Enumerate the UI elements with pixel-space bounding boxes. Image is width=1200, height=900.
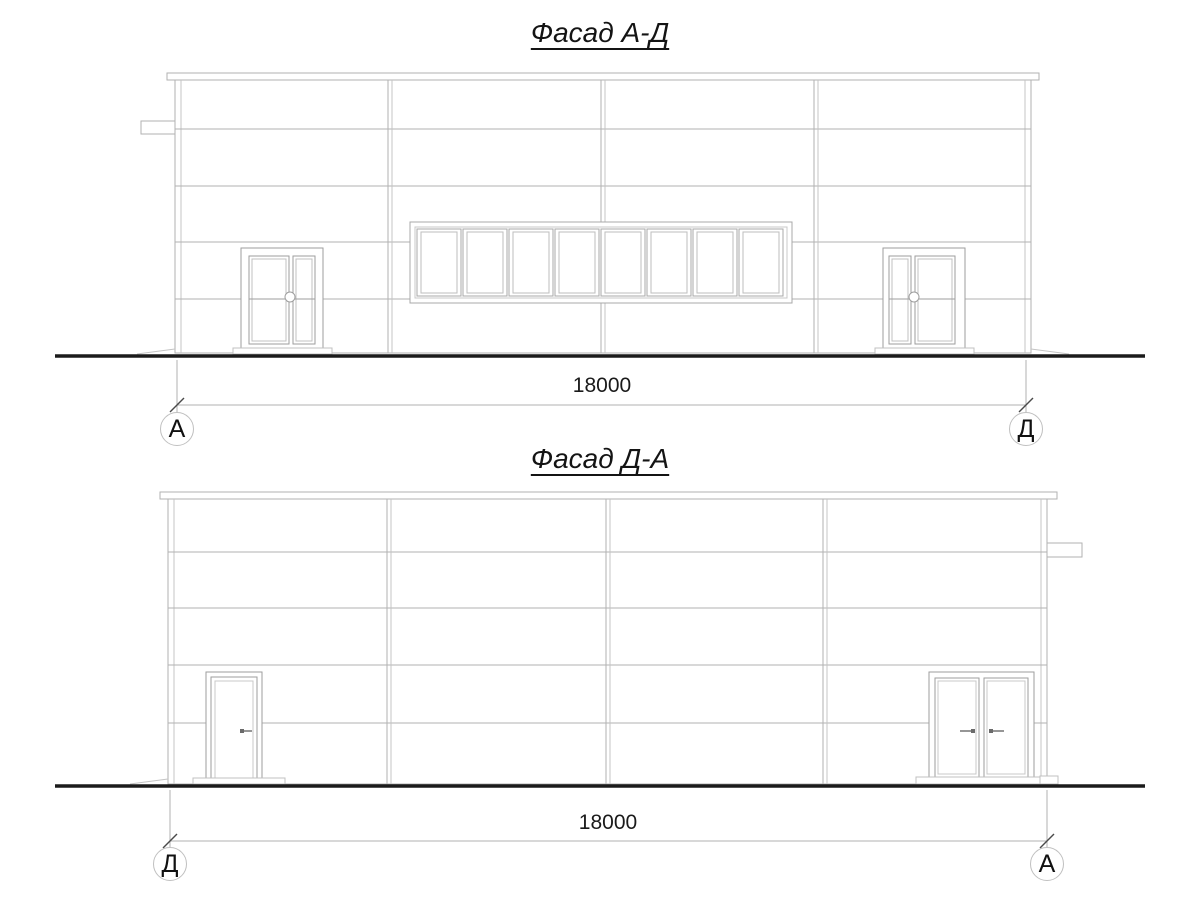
axis-marker-right: Д (1010, 413, 1043, 446)
facade-ad-door-right (875, 248, 974, 354)
door-handle-icon (285, 292, 295, 302)
axis-marker-left: А (161, 413, 194, 446)
scupper-right (1047, 543, 1082, 557)
facade-da-parapet (160, 492, 1057, 499)
elevation-drawing: 18000 А Д (0, 0, 1200, 900)
facade-ad-parapet (167, 73, 1039, 80)
apron-left (137, 349, 175, 354)
axis-letter: Д (162, 850, 179, 878)
window-pane (417, 229, 461, 296)
wall-outline (168, 499, 1047, 784)
door-handle-head (989, 729, 993, 733)
axis-marker-right: А (1031, 848, 1064, 881)
axis-letter: Д (1018, 415, 1035, 443)
door-handle-icon (909, 292, 919, 302)
scupper-left (141, 121, 175, 134)
dimension-value: 18000 (573, 374, 631, 397)
window-pane (509, 229, 553, 296)
door-leaf (249, 256, 289, 344)
window-pane (739, 229, 783, 296)
facade-ad-elevation: 18000 А Д (55, 73, 1145, 446)
axis-letter: А (1039, 850, 1056, 878)
window-pane (555, 229, 599, 296)
door-threshold (916, 777, 1046, 784)
door-leaf-right (984, 678, 1028, 777)
door-threshold (233, 348, 332, 354)
door-leaf-left (935, 678, 979, 777)
apron-left (130, 779, 168, 784)
axis-letter: А (169, 415, 186, 443)
facade-ad-window-band (410, 222, 792, 303)
door-threshold (193, 778, 285, 784)
corner-plinth (1040, 776, 1058, 784)
facade-da-elevation: 18000 Д А (55, 492, 1145, 881)
facade-da-dimension: 18000 Д А (154, 790, 1064, 881)
window-pane (693, 229, 737, 296)
facade-da-wall (168, 499, 1047, 784)
facade-ad-door-left (233, 248, 332, 354)
drawing-canvas: Фасад А-Д Фасад Д-А (0, 0, 1200, 900)
facade-ad-dimension: 18000 А Д (161, 360, 1043, 446)
door-handle-head (971, 729, 975, 733)
door-handle-head (240, 729, 244, 733)
door-leaf (211, 677, 257, 778)
door-threshold (875, 348, 974, 354)
door-leaf (915, 256, 955, 344)
window-pane (601, 229, 645, 296)
apron-right (1031, 349, 1069, 354)
window-pane (463, 229, 507, 296)
axis-marker-left: Д (154, 848, 187, 881)
dimension-value: 18000 (579, 811, 637, 834)
window-pane (647, 229, 691, 296)
